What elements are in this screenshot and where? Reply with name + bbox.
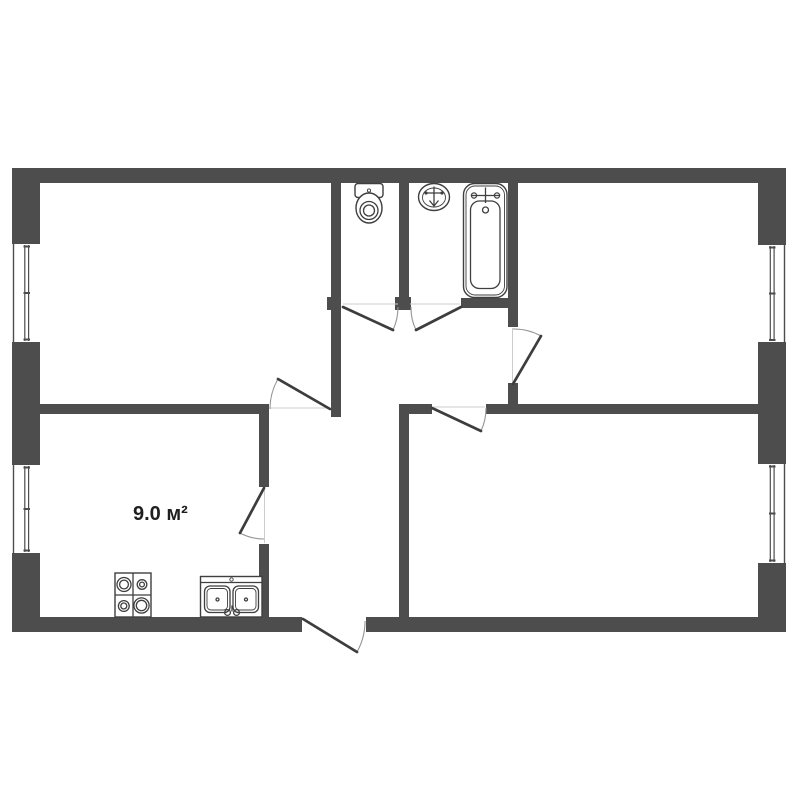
- wall: [758, 168, 786, 245]
- window-bottom-left: [14, 465, 31, 553]
- door-room-top-right: [513, 328, 542, 384]
- interior-walls: [40, 183, 758, 617]
- door-leaf: [416, 307, 461, 330]
- kitchen-sink-icon: [201, 577, 263, 618]
- door-wc: [343, 304, 398, 330]
- door-swing-arc: [240, 533, 264, 539]
- door-kitchen: [240, 488, 265, 543]
- wall: [486, 404, 518, 414]
- door-leaf: [432, 408, 481, 431]
- door-leaf: [240, 488, 264, 533]
- wall: [399, 404, 409, 617]
- door-swing-arc: [357, 621, 365, 652]
- door-bathroom: [410, 304, 461, 330]
- door-entry: [303, 619, 365, 652]
- window-top-right: [769, 245, 785, 342]
- door-swing-arc: [270, 379, 278, 409]
- wall: [508, 404, 758, 414]
- wall: [461, 298, 518, 308]
- washbasin-handle: [440, 191, 443, 194]
- stove-icon: [115, 573, 151, 617]
- washbasin-handle: [424, 191, 427, 194]
- wall: [327, 297, 341, 310]
- wall: [259, 404, 269, 487]
- door-leaf: [303, 619, 357, 652]
- door-leaf: [343, 307, 393, 330]
- wall: [12, 553, 40, 632]
- bathtub-icon: [464, 184, 508, 298]
- washbasin-icon: [419, 184, 450, 211]
- wall: [399, 183, 409, 308]
- room-area-label: 9.0 м²: [133, 503, 188, 525]
- door-room-top-left: [270, 379, 330, 409]
- wall: [12, 342, 40, 465]
- window-bottom-right: [769, 464, 785, 563]
- floor-plan-page: 9.0 м²: [0, 0, 800, 800]
- wall: [758, 342, 786, 464]
- wall: [12, 168, 40, 244]
- wall: [366, 617, 786, 632]
- wall: [40, 404, 269, 414]
- door-swing-arc: [481, 408, 486, 431]
- window-top-left: [14, 244, 31, 342]
- wall: [12, 617, 302, 632]
- door-swing-arc: [411, 307, 416, 330]
- floor-plan: 9.0 м²: [0, 0, 800, 800]
- door-swing-arc: [393, 307, 398, 330]
- door-swing-arc: [513, 329, 541, 336]
- door-leaf: [278, 379, 330, 409]
- wall: [12, 168, 786, 183]
- toilet-icon: [355, 184, 383, 224]
- door-leaf: [513, 336, 541, 384]
- wall: [758, 563, 786, 632]
- door-room-bottom-right: [432, 407, 486, 431]
